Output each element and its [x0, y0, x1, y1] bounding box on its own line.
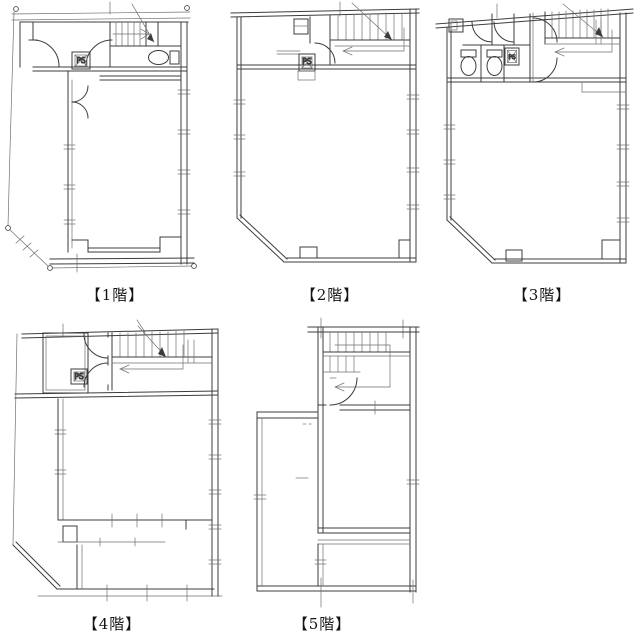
floor-label-1f: 【1階】: [55, 284, 175, 305]
up-arrow-icon: [158, 347, 166, 357]
toilet-icon: [461, 50, 476, 76]
floor-plans-sheet: PS: [0, 0, 640, 640]
floor-label-3f: 【3階】: [482, 284, 602, 305]
exterior-walls-3f: [436, 4, 633, 263]
ps-shaft-3f: PS: [505, 48, 519, 65]
ps-label: PS: [508, 54, 516, 61]
staircase-icon-3f: [545, 4, 620, 56]
window-ticks-2f: [234, 95, 419, 209]
door-arc-icon: [494, 22, 514, 42]
toilet-icon: [149, 51, 180, 65]
survey-marker-icon: [48, 266, 53, 271]
closet-2f: [294, 19, 308, 34]
hall-walls-1f: [33, 67, 187, 80]
floor-plan-4f: PS: [5, 318, 225, 610]
exterior-walls-2f: [231, 2, 419, 262]
ps-shaft-1f: PS: [72, 52, 90, 69]
ps-label: PS: [76, 56, 86, 65]
main-room-4f: [58, 399, 212, 589]
survey-marker-icon: [185, 6, 190, 11]
window-ticks-3f: [444, 105, 629, 222]
survey-marker-icon: [14, 7, 19, 12]
door-arc-icon: [330, 378, 357, 405]
exterior-walls-4f: [13, 320, 222, 596]
ps-label: PS: [74, 372, 84, 381]
double-door-icon: [72, 86, 88, 102]
window-ticks-4f: [55, 420, 221, 601]
roof-terrace-5f: [254, 412, 419, 607]
up-arrow-icon: [384, 31, 392, 40]
staircase-icon-1f: [110, 4, 158, 46]
toilet-icon: [487, 50, 502, 76]
hall-walls-4f: [15, 333, 218, 398]
floor-plan-3f: PS: [425, 0, 640, 285]
hall-walls-2f: [237, 15, 416, 69]
double-door-icon: [72, 102, 88, 118]
survey-marker-icon: [192, 264, 197, 269]
entrance-door-icon: [29, 22, 112, 66]
penthouse-5f: [308, 318, 419, 592]
ps-shaft-2f: PS: [298, 54, 315, 80]
exterior-walls-1f: [20, 22, 194, 264]
staircase-icon-5f: [323, 333, 410, 405]
floor-plan-2f: PS: [225, 0, 425, 285]
floor-plan-1f: PS: [0, 0, 215, 282]
floor-plan-5f: [245, 315, 435, 610]
survey-marker-icon: [6, 226, 11, 231]
counter-2f: [277, 51, 300, 54]
floor-label-2f: 【2階】: [270, 284, 390, 305]
floor-label-5f: 【5階】: [262, 613, 382, 634]
window-ticks-1f: [64, 90, 190, 224]
floor-label-4f: 【4階】: [52, 613, 172, 634]
hall-walls-3f: [447, 78, 626, 92]
door-arc-icon: [315, 43, 335, 63]
main-room-1f: [68, 71, 181, 272]
toilet-room-1f: [110, 46, 181, 67]
ps-label: PS: [302, 57, 312, 66]
